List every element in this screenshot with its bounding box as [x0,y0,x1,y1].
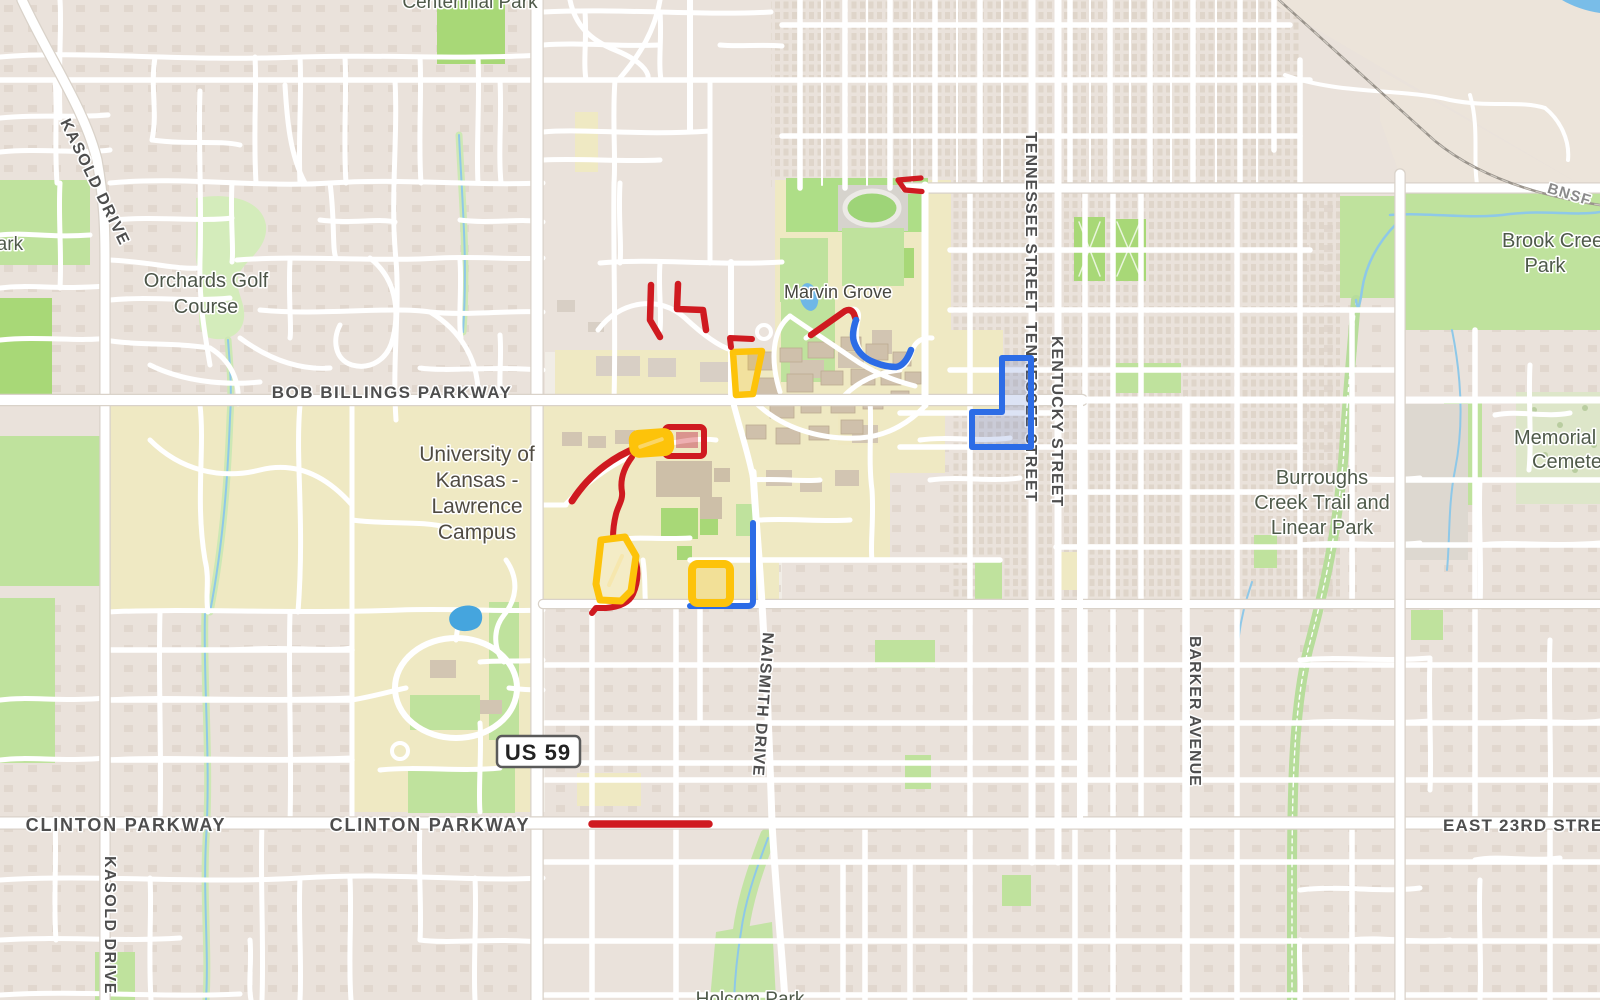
svg-text:Park: Park [0,234,24,255]
svg-text:Linear Park: Linear Park [1271,517,1374,539]
svg-text:US 59: US 59 [505,740,571,765]
svg-text:CLINTON PARKWAY: CLINTON PARKWAY [26,815,227,835]
svg-text:Memorial Park: Memorial Park [1514,427,1600,449]
svg-text:Lawrence: Lawrence [431,495,522,518]
svg-text:Park: Park [1524,255,1566,277]
svg-text:Burroughs: Burroughs [1276,467,1368,489]
svg-text:BOB BILLINGS PARKWAY: BOB BILLINGS PARKWAY [272,383,513,402]
svg-text:Marvin Grove: Marvin Grove [784,282,892,302]
svg-text:Centennial Park: Centennial Park [402,0,538,13]
svg-text:CLINTON PARKWAY: CLINTON PARKWAY [330,815,531,835]
svg-text:Cemetery: Cemetery [1532,451,1600,473]
svg-text:BARKER AVENUE: BARKER AVENUE [1186,636,1203,787]
svg-text:KENTUCKY STREET: KENTUCKY STREET [1048,336,1065,507]
svg-text:TENNESSEE STREET: TENNESSEE STREET [1022,132,1039,312]
svg-text:Holcom Park: Holcom Park [696,989,805,1000]
svg-text:Brook Creek: Brook Creek [1502,230,1600,252]
svg-text:Orchards Golf: Orchards Golf [144,270,269,292]
svg-text:KASOLD DRIVE: KASOLD DRIVE [101,856,118,995]
svg-text:Kansas -: Kansas - [436,469,519,492]
svg-text:Campus: Campus [438,521,516,544]
svg-text:University of: University of [419,443,535,466]
svg-text:EAST 23RD STREET: EAST 23RD STREET [1443,816,1600,835]
svg-text:Course: Course [174,296,238,318]
svg-text:Creek Trail and: Creek Trail and [1254,492,1390,514]
